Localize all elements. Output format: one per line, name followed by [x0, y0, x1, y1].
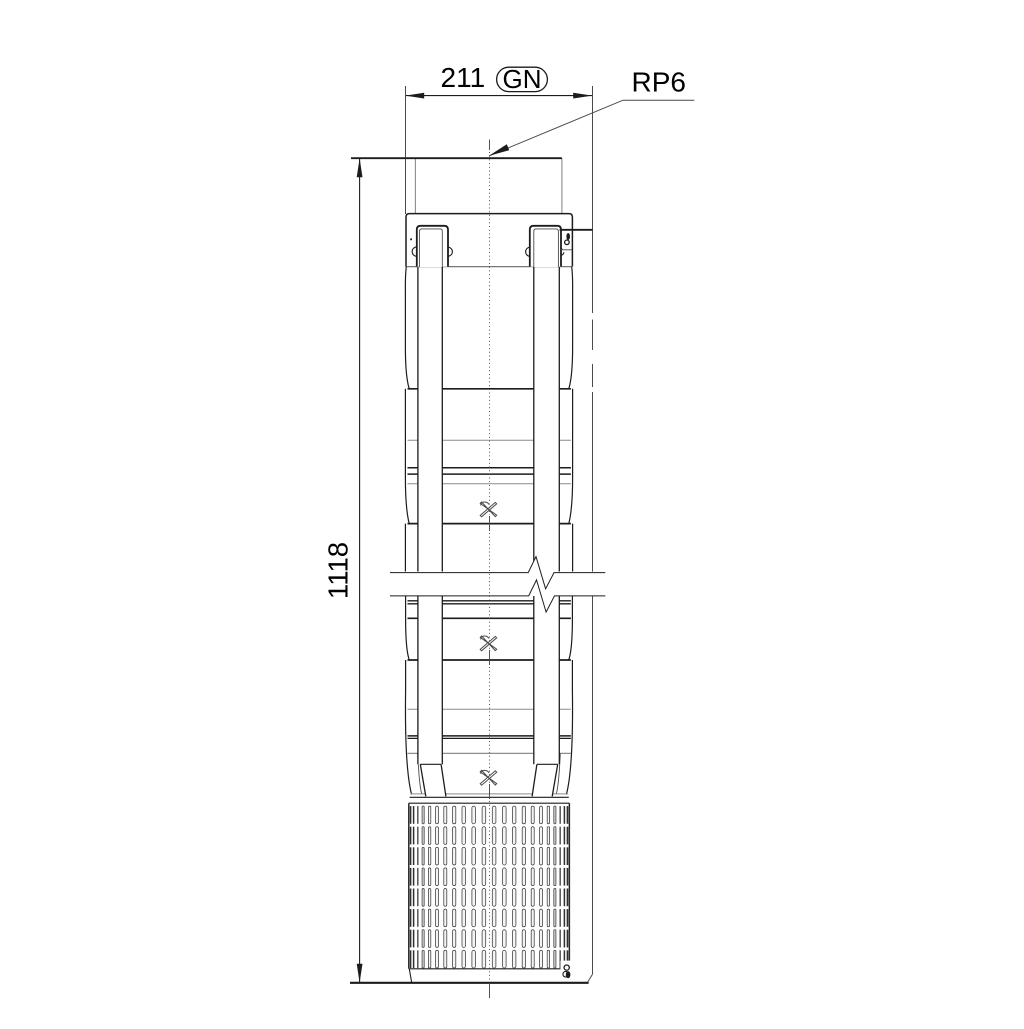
svg-text:211: 211 [441, 62, 486, 93]
svg-text:GN: GN [503, 64, 542, 94]
svg-text:1118: 1118 [323, 542, 354, 599]
svg-text:RP6: RP6 [632, 67, 686, 98]
